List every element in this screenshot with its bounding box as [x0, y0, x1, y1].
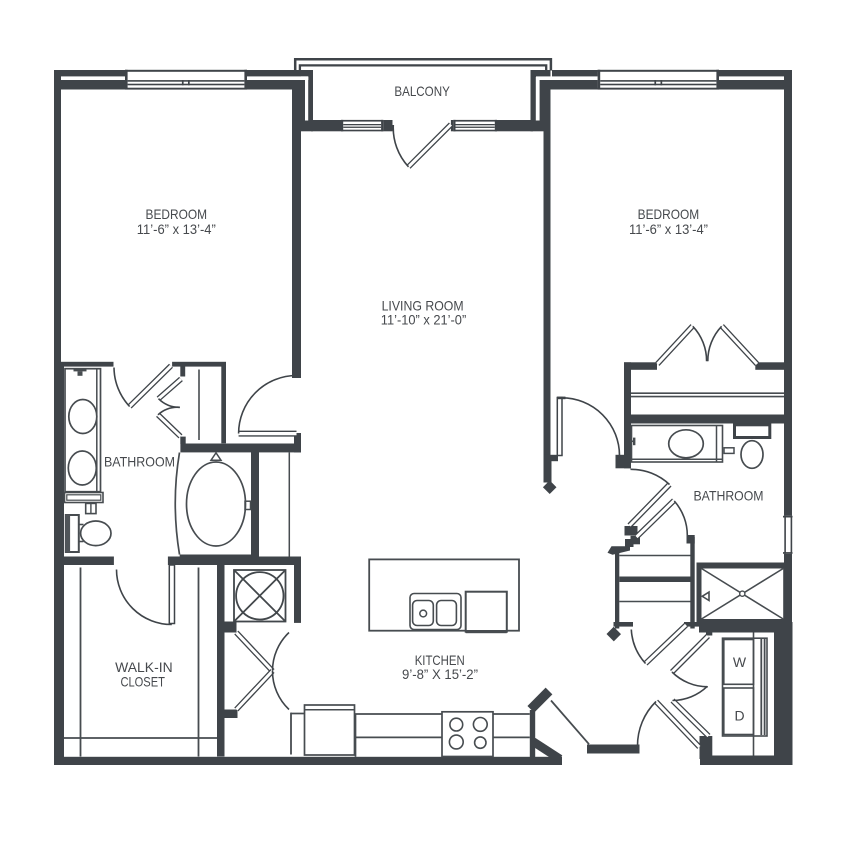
- svg-text:BATHROOM: BATHROOM: [694, 488, 764, 504]
- svg-text:11’-10” x 21’-0”: 11’-10” x 21’-0”: [381, 311, 467, 327]
- svg-text:11’-6” x 13’-4”: 11’-6” x 13’-4”: [629, 221, 708, 237]
- svg-text:CLOSET: CLOSET: [120, 674, 165, 690]
- svg-text:W: W: [733, 654, 747, 670]
- svg-text:WALK-IN: WALK-IN: [115, 659, 173, 675]
- svg-text:9’-8” X 15’-2”: 9’-8” X 15’-2”: [402, 666, 478, 682]
- svg-text:BALCONY: BALCONY: [394, 83, 450, 99]
- svg-text:BATHROOM: BATHROOM: [104, 453, 175, 469]
- svg-text:D: D: [734, 707, 744, 723]
- svg-text:BEDROOM: BEDROOM: [146, 206, 208, 222]
- svg-text:11’-6” x 13’-4”: 11’-6” x 13’-4”: [137, 221, 216, 237]
- svg-text:BEDROOM: BEDROOM: [638, 206, 700, 222]
